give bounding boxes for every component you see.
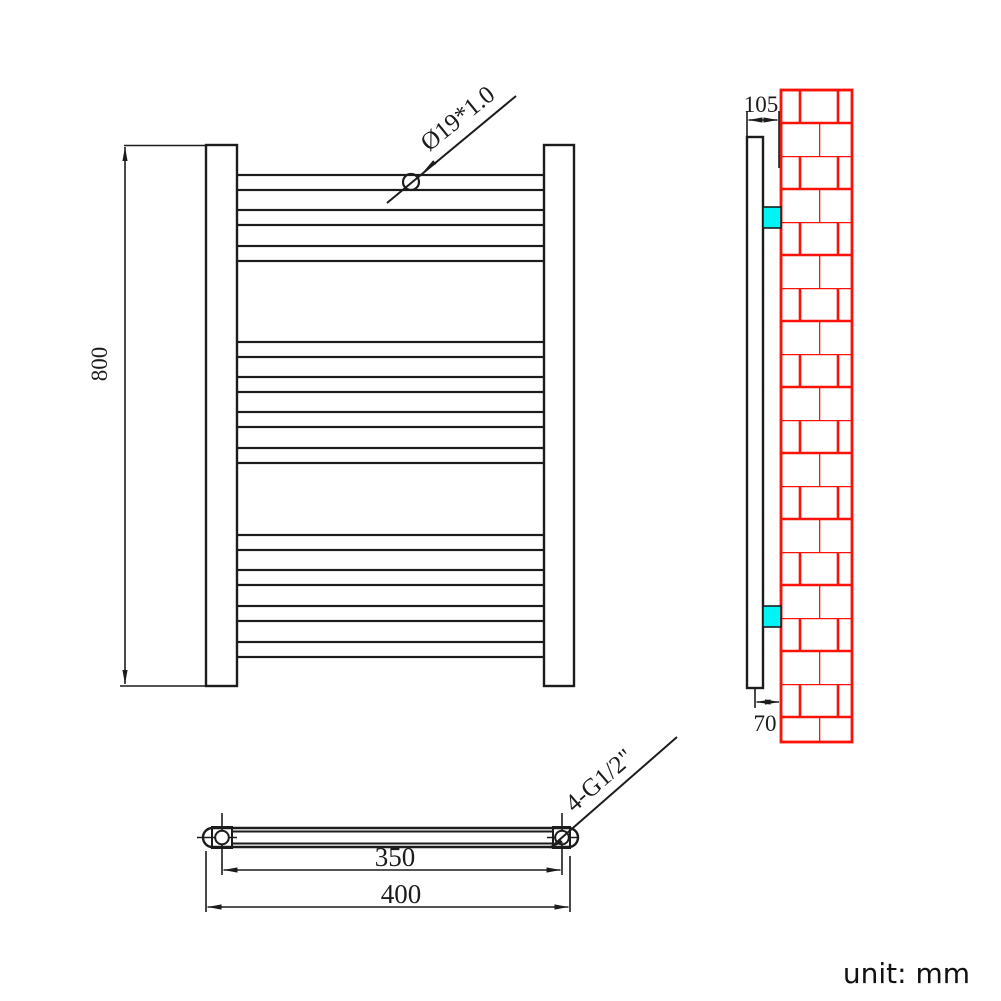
dimension-label-105: 105 xyxy=(744,92,779,117)
tube-group-top xyxy=(237,175,546,261)
tube xyxy=(237,342,546,357)
side-profile-bar xyxy=(747,137,763,688)
unit-note: unit: mm xyxy=(843,957,970,990)
tube xyxy=(237,377,546,392)
wall-bracket-top xyxy=(763,207,781,228)
thread-spec-callout: 4-G1/2" xyxy=(550,737,677,848)
technical-drawing-page: 800 Ø19*1.0 xyxy=(0,0,1001,1001)
dimension-70: 70 xyxy=(754,688,780,736)
tapping-hole xyxy=(215,831,229,845)
tube xyxy=(237,412,546,427)
dimension-label-350: 350 xyxy=(375,842,416,872)
tube xyxy=(237,448,546,463)
front-view: 800 Ø19*1.0 xyxy=(87,81,574,686)
dimension-label-70: 70 xyxy=(754,711,777,736)
dimension-label-height: 800 xyxy=(87,347,112,382)
dimension-label-400: 400 xyxy=(381,879,422,909)
bottom-view: 4-G1/2" 350 400 xyxy=(197,737,677,912)
left-rail xyxy=(206,145,237,686)
tube xyxy=(237,210,546,225)
tube xyxy=(237,175,546,190)
tube xyxy=(237,642,546,657)
leader-arrow xyxy=(424,160,436,171)
tube xyxy=(237,535,546,550)
tube-group-middle xyxy=(237,342,546,463)
tube xyxy=(237,606,546,621)
towel-radiator-drawing: 800 Ø19*1.0 xyxy=(0,0,1001,1001)
tube-group-bottom xyxy=(237,535,546,657)
side-view: 105 70 xyxy=(744,90,852,742)
right-rail xyxy=(544,145,574,686)
tube xyxy=(237,570,546,585)
wall-section xyxy=(781,90,852,742)
wall-bracket-bottom xyxy=(763,606,781,627)
tube xyxy=(237,246,546,261)
